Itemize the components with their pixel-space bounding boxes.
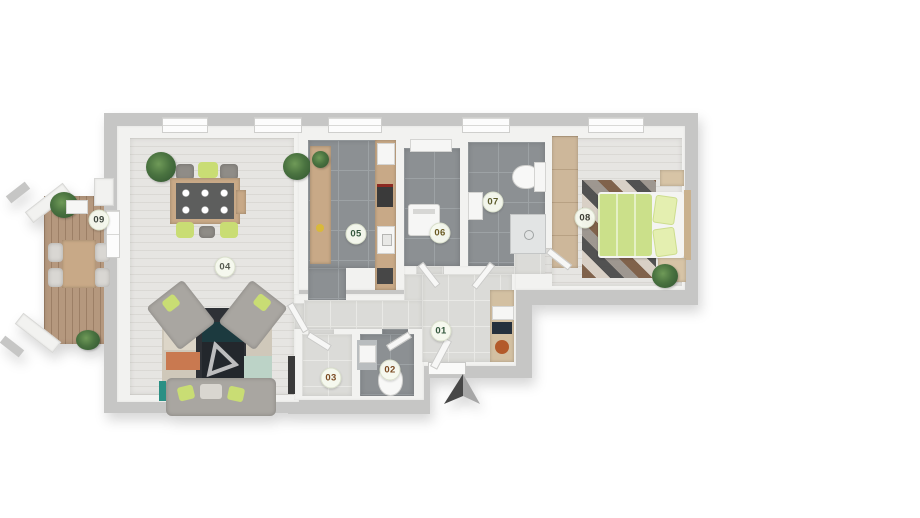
terrace-outer-stub-bottom (0, 336, 24, 358)
living-plant-right (283, 153, 311, 180)
sofa-side-vase (159, 381, 166, 401)
bedroom-plant (652, 264, 678, 288)
floor-plan-canvas: 01 02 03 04 05 06 07 08 09 (0, 0, 920, 518)
terrace-plant-bottom (76, 330, 100, 350)
bathroom-window (462, 117, 510, 133)
shower-drain (524, 230, 534, 240)
living-rug-patch-orange (166, 352, 200, 370)
triangle-watermark (206, 341, 243, 382)
room-label-04: 04 (215, 257, 236, 278)
bed-headboard (684, 190, 691, 260)
kitchen-wall-counter (375, 140, 396, 290)
room-label-08: 08 (575, 208, 596, 229)
dining-chair-bottom-1 (176, 222, 194, 238)
terrace-outer-stub-top (6, 182, 30, 204)
terrace-chair-4 (95, 268, 110, 287)
sofa-pillow-3 (227, 385, 246, 402)
kitchen-sink-basin (382, 234, 392, 246)
bedroom-window (588, 117, 644, 133)
kitchen-fridge (377, 143, 395, 165)
wc-vanity (357, 340, 377, 370)
kitchen-bowl (316, 224, 324, 232)
room-label-03: 03 (321, 368, 342, 389)
kitchen-plant (312, 151, 329, 168)
sofa-pillow-2 (200, 384, 222, 399)
dining-chair-bottom-2 (199, 226, 215, 238)
sofa (166, 378, 276, 416)
washing-machine-panel (413, 209, 435, 214)
living-window-2 (254, 117, 302, 133)
hall-cabinet-pot (495, 340, 509, 354)
sofa-pillow-1 (177, 384, 196, 401)
terrace-chair-1 (48, 243, 63, 262)
dining-chair-side (236, 190, 246, 214)
dining-chair-bottom-3 (220, 222, 238, 238)
hall-cabinet-dark-box (492, 322, 512, 334)
bedroom-wardrobe (552, 136, 578, 268)
armchair-left-pillow (161, 293, 181, 312)
dining-table-top (176, 183, 234, 219)
room-label-02: 02 (380, 360, 401, 381)
hall-cabinet-shelf-item (492, 306, 514, 320)
kitchen-sink (377, 226, 395, 254)
room-label-05: 05 (346, 224, 367, 245)
kitchen-doorway-floor (308, 268, 346, 302)
north-arrow (442, 372, 482, 408)
shower-tray (510, 214, 546, 254)
utility-counter-top (410, 139, 452, 152)
terrace-table (62, 240, 96, 288)
bed-pillow-2 (652, 227, 678, 258)
dining-chair-top-2 (198, 162, 218, 178)
wc-sink (359, 345, 376, 363)
hall-cabinet (490, 290, 514, 362)
kitchen-oven (377, 184, 393, 207)
bathroom-sink (468, 192, 483, 220)
bed-pillow-1 (652, 195, 678, 226)
hallway-floor-link (404, 274, 422, 302)
hallway-corridor-floor (304, 300, 422, 329)
terrace-wall-stub-right (94, 178, 114, 206)
nightstand-top (660, 170, 684, 186)
bed-duvet (598, 194, 652, 256)
room-label-07: 07 (483, 192, 504, 213)
dining-table (170, 178, 240, 224)
kitchen-window (328, 117, 382, 133)
armchair-right-pillow (252, 293, 272, 312)
living-window-1 (162, 117, 208, 133)
terrace-chair-2 (48, 268, 63, 287)
bed (598, 192, 684, 258)
building: 01 02 03 04 05 06 07 08 09 (0, 0, 920, 518)
room-label-06: 06 (430, 223, 451, 244)
media-unit (288, 356, 295, 394)
terrace-planter-box (66, 200, 88, 214)
room-label-09: 09 (89, 210, 110, 231)
kitchen-cabinet-dark (377, 268, 393, 284)
room-label-01: 01 (431, 321, 452, 342)
toilet-tank (534, 162, 546, 192)
